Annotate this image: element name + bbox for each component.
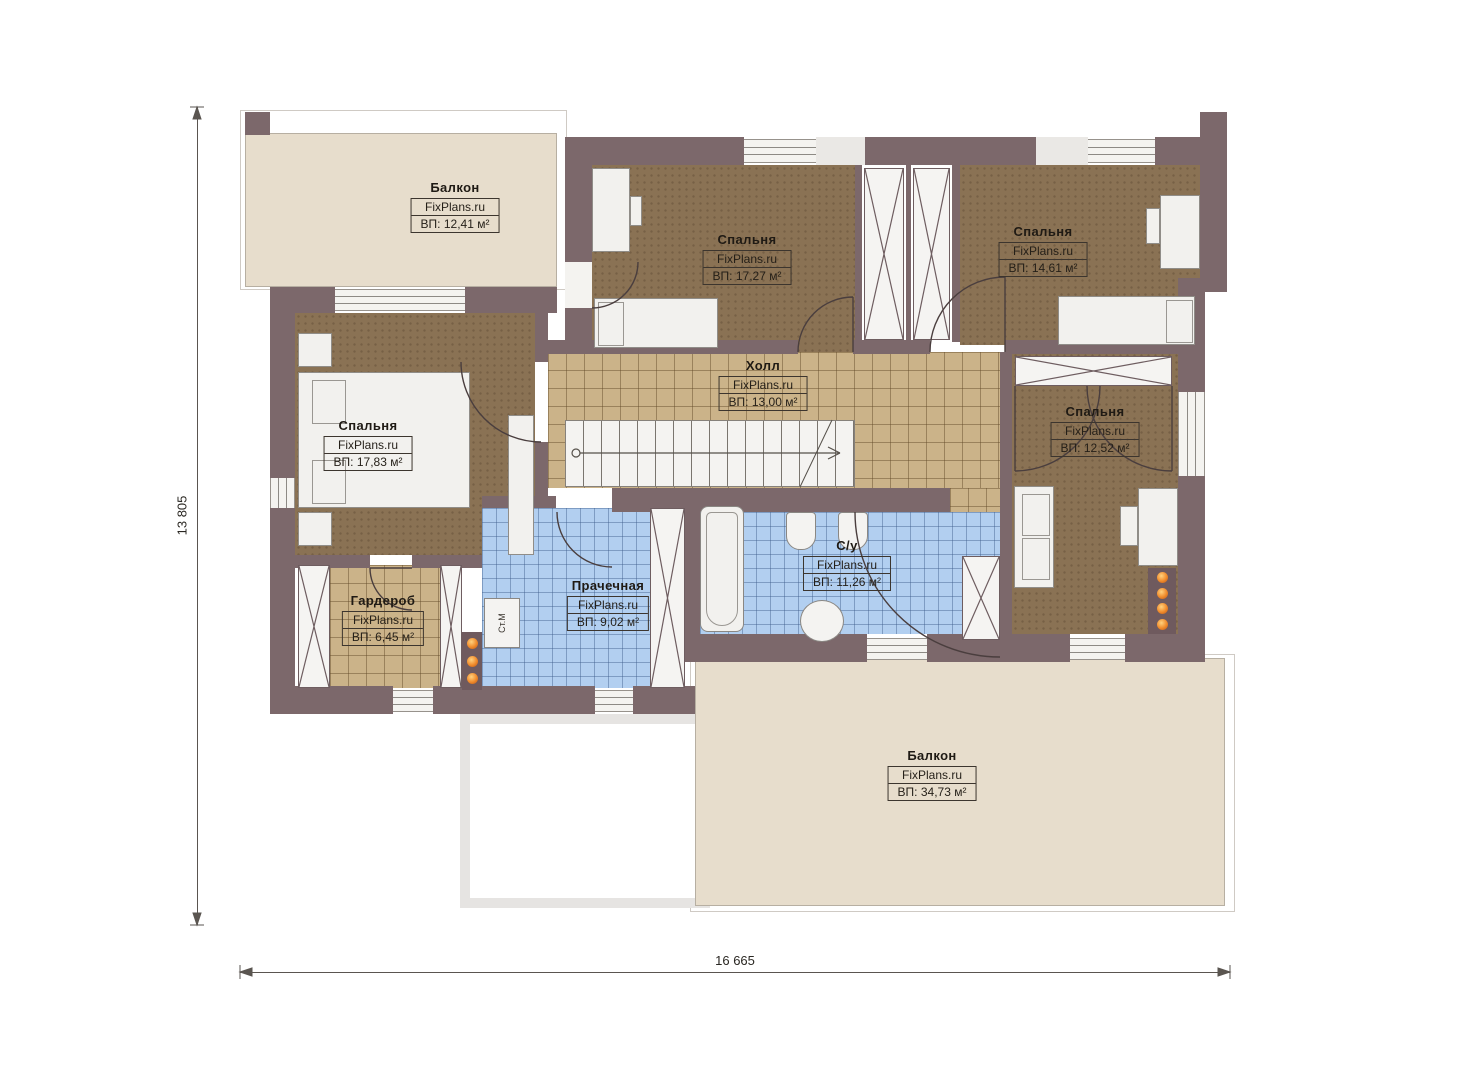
watermark: FixPlans.ru [889, 767, 976, 784]
watermark: FixPlans.ru [704, 251, 791, 268]
balcony-door-gap [565, 262, 592, 308]
room-name: Спальня [1066, 404, 1125, 419]
closet-x [650, 508, 685, 688]
desk [1138, 488, 1178, 566]
radiator-dot [1157, 588, 1168, 599]
room-info-box: FixPlans.ru ВП: 12,52 м² [1051, 422, 1140, 457]
radiator-dot [467, 656, 478, 667]
wall-interior [855, 165, 862, 342]
dimension-line-horizontal [240, 972, 1230, 973]
window [335, 289, 465, 311]
radiator-dot [1157, 572, 1168, 583]
lower-roof-band [460, 714, 710, 908]
radiator [1148, 568, 1176, 634]
desk [1160, 195, 1200, 269]
pillow [598, 302, 624, 346]
window [393, 690, 433, 712]
wall-segment [433, 686, 595, 714]
wall-segment [270, 686, 393, 714]
watermark: FixPlans.ru [804, 557, 890, 574]
wall-segment [1155, 137, 1200, 165]
closet-x [298, 565, 330, 688]
watermark: FixPlans.ru [568, 597, 648, 614]
room-area: ВП: 13,00 м² [720, 394, 807, 410]
room-area: ВП: 12,41 м² [412, 216, 499, 232]
room-info-box: FixPlans.ru ВП: 9,02 м² [567, 596, 649, 631]
window [270, 478, 295, 508]
hall-passage-floor [950, 488, 1000, 512]
room-name: Холл [746, 358, 780, 373]
window [867, 638, 927, 660]
watermark: FixPlans.ru [1052, 423, 1139, 440]
cabinet [508, 415, 534, 555]
wall-corner-pillar [1200, 112, 1227, 292]
wall-segment [565, 165, 592, 262]
wall-segment [633, 686, 695, 714]
dimension-vertical-value: 13 805 [174, 496, 189, 536]
balcony-top-floor [245, 133, 557, 287]
room-name: Спальня [1014, 224, 1073, 239]
radiator [462, 632, 482, 690]
room-name: Гардероб [351, 593, 416, 608]
wall-interior [1000, 512, 1012, 634]
room-label-balcony-top: Балкон FixPlans.ru ВП: 12,41 м² [411, 180, 500, 233]
room-area: ВП: 11,26 м² [804, 574, 890, 590]
chair [1146, 208, 1160, 244]
wall-interior [853, 340, 930, 354]
wall-interior [906, 165, 911, 342]
cabinet-knob [630, 196, 642, 226]
room-name: Прачечная [572, 578, 644, 593]
room-area: ВП: 9,02 м² [568, 614, 648, 630]
closet-x [440, 565, 462, 688]
wall-interior [685, 508, 700, 634]
window [744, 139, 816, 163]
room-area: ВП: 17,83 м² [325, 454, 412, 470]
bathtub [700, 506, 744, 632]
watermark: FixPlans.ru [412, 199, 499, 216]
sink [800, 600, 844, 642]
room-area: ВП: 34,73 м² [889, 784, 976, 800]
sofa-cushion [1022, 538, 1050, 580]
room-label-hall: Холл FixPlans.ru ВП: 13,00 м² [719, 358, 808, 411]
room-label-bedroom-top-mid: Спальня FixPlans.ru ВП: 17,27 м² [703, 232, 792, 285]
room-info-box: FixPlans.ru ВП: 13,00 м² [719, 376, 808, 411]
room-area: ВП: 12,52 м² [1052, 440, 1139, 456]
radiator-dot [1157, 603, 1168, 614]
wall-interior [1000, 352, 1012, 488]
room-label-laundry: Прачечная FixPlans.ru ВП: 9,02 м² [567, 578, 649, 631]
room-name: Спальня [339, 418, 398, 433]
wall-segment [270, 287, 335, 313]
wall-interior [535, 313, 548, 362]
nightstand [298, 512, 332, 546]
wall-segment [865, 137, 1036, 165]
staircase [565, 420, 855, 487]
window [595, 690, 633, 712]
room-name: С/у [836, 538, 857, 553]
wall-interior [1000, 488, 1012, 512]
watermark: FixPlans.ru [1000, 243, 1087, 260]
window [1178, 392, 1205, 476]
washing-machine: Ст.М [484, 598, 520, 648]
room-info-box: FixPlans.ru ВП: 17,27 м² [703, 250, 792, 285]
room-name: Балкон [907, 748, 956, 763]
watermark: FixPlans.ru [325, 437, 412, 454]
room-info-box: FixPlans.ru ВП: 11,26 м² [803, 556, 891, 591]
wall-recess [816, 137, 865, 165]
room-info-box: FixPlans.ru ВП: 12,41 м² [411, 198, 500, 233]
room-name: Спальня [718, 232, 777, 247]
room-info-box: FixPlans.ru ВП: 6,45 м² [342, 611, 424, 646]
room-area: ВП: 14,61 м² [1000, 260, 1087, 276]
room-label-bathroom: С/у FixPlans.ru ВП: 11,26 м² [803, 538, 891, 591]
floor-plan: Ст.М [0, 0, 1474, 1080]
window [1070, 638, 1125, 660]
room-area: ВП: 17,27 м² [704, 268, 791, 284]
closet-x [913, 168, 950, 340]
washing-machine-label: Ст.М [497, 613, 507, 633]
room-info-box: FixPlans.ru ВП: 17,83 м² [324, 436, 413, 471]
room-label-balcony-bottom: Балкон FixPlans.ru ВП: 34,73 м² [888, 748, 977, 801]
room-label-bedroom-right: Спальня FixPlans.ru ВП: 12,52 м² [1051, 404, 1140, 457]
window [1088, 139, 1155, 163]
room-label-wardrobe: Гардероб FixPlans.ru ВП: 6,45 м² [342, 593, 424, 646]
closet-x [864, 168, 904, 340]
room-info-box: FixPlans.ru ВП: 34,73 м² [888, 766, 977, 801]
wall-segment [680, 634, 867, 662]
wall-segment [565, 137, 744, 165]
radiator-dot [467, 638, 478, 649]
closet-x [1015, 356, 1172, 386]
radiator-dot [1157, 619, 1168, 630]
wall-segment [245, 112, 270, 135]
room-info-box: FixPlans.ru ВП: 14,61 м² [999, 242, 1088, 277]
room-area: ВП: 6,45 м² [343, 629, 423, 645]
dimension-horizontal-value: 16 665 [715, 953, 755, 968]
wall-segment [465, 287, 557, 313]
radiator-dot [467, 673, 478, 684]
chair [1120, 506, 1138, 546]
watermark: FixPlans.ru [343, 612, 423, 629]
closet-x [962, 556, 1000, 640]
wall-recess [1036, 137, 1088, 165]
watermark: FixPlans.ru [720, 377, 807, 394]
dimension-line-vertical [197, 107, 198, 925]
wardrobe-cabinet [592, 168, 630, 252]
wall-segment [1125, 634, 1205, 662]
sofa-cushion [1022, 494, 1050, 536]
room-label-bedroom-top-right: Спальня FixPlans.ru ВП: 14,61 м² [999, 224, 1088, 277]
nightstand [298, 333, 332, 367]
wall-interior [952, 165, 960, 342]
room-label-bedroom-left: Спальня FixPlans.ru ВП: 17,83 м² [324, 418, 413, 471]
room-name: Балкон [430, 180, 479, 195]
pillow [1166, 300, 1193, 343]
